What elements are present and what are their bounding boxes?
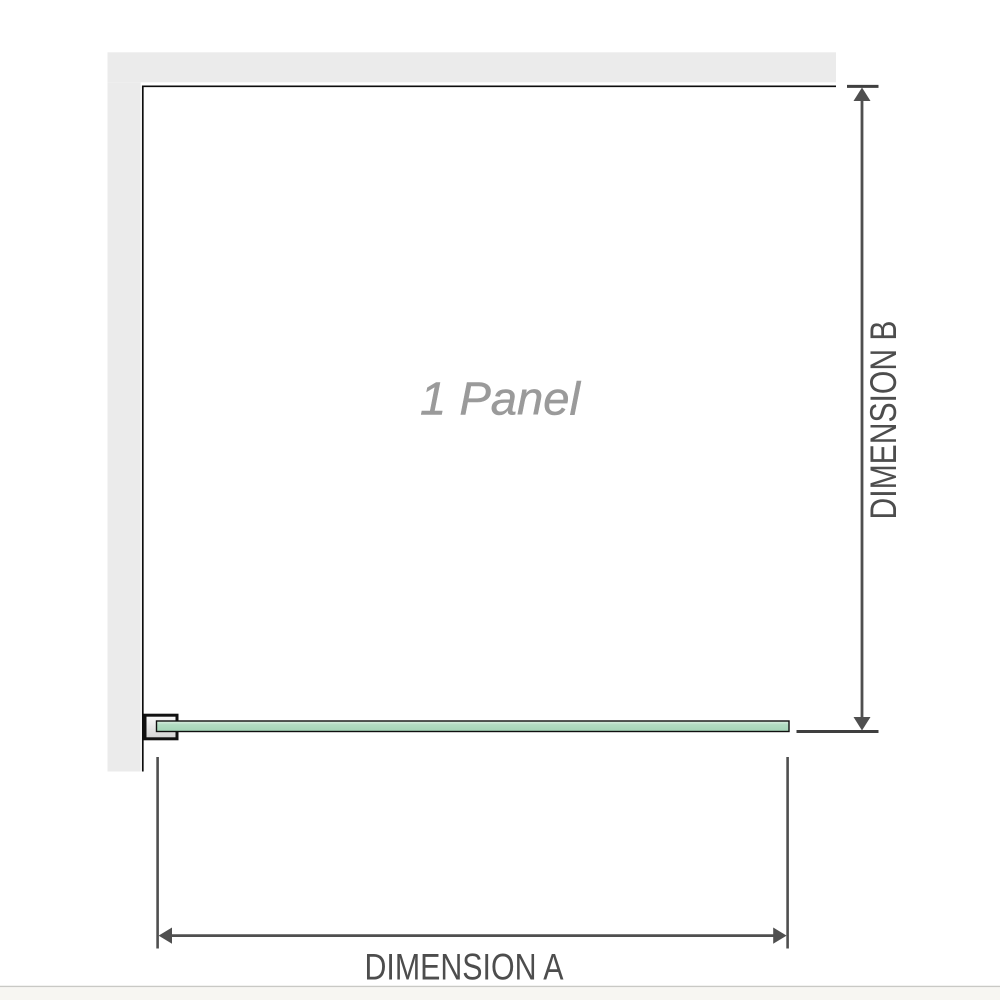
svg-text:DIMENSION B: DIMENSION B: [863, 321, 904, 520]
svg-text:DIMENSION A: DIMENSION A: [365, 947, 564, 988]
svg-text:1 Panel: 1 Panel: [420, 373, 582, 425]
